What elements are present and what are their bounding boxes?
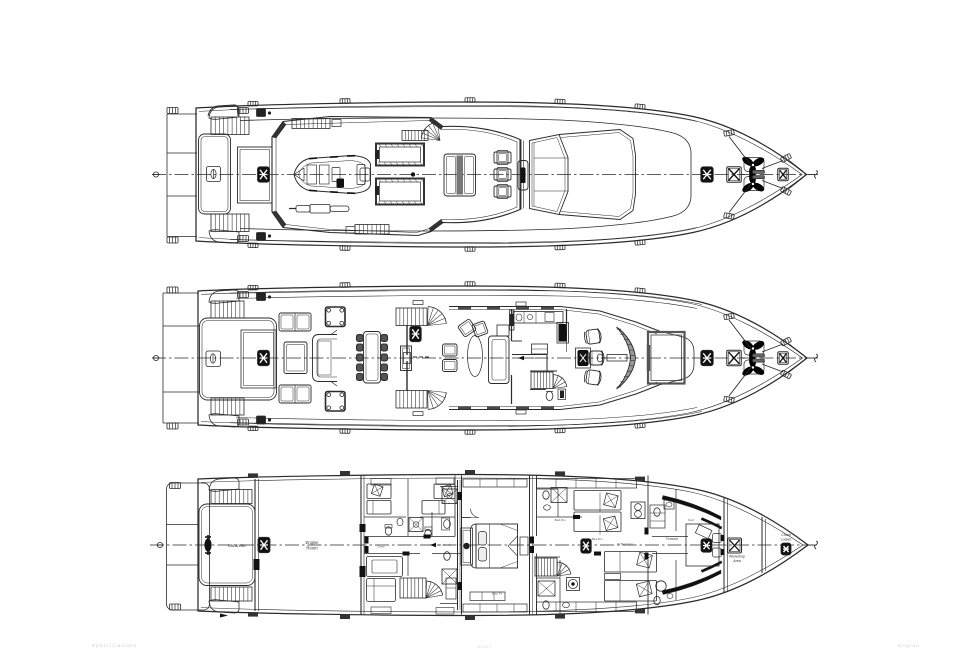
- svg-text:Engine: Engine: [305, 540, 319, 545]
- svg-text:Workshop: Workshop: [729, 555, 745, 559]
- svg-text:Lazarette: Lazarette: [228, 543, 246, 548]
- svg-text:W Bed Unit: W Bed Unit: [617, 542, 632, 546]
- svg-text:WC: WC: [554, 573, 560, 577]
- svg-text:Bed Rm: Bed Rm: [592, 537, 603, 541]
- svg-text:S p e c i f i c a t i o n s: S p e c i f i c a t i o n s: [92, 643, 137, 648]
- svg-text:Room: Room: [306, 546, 318, 551]
- svg-text:G A p l a n: G A p l a n: [898, 643, 919, 648]
- svg-text:Fwd: Fwd: [688, 518, 694, 522]
- svg-text:Chain: Chain: [781, 533, 790, 537]
- svg-text:Bed Rm: Bed Rm: [555, 518, 566, 522]
- svg-text:Crew: Crew: [377, 545, 385, 549]
- svg-text:Sofa TV: Sofa TV: [492, 592, 503, 596]
- svg-text:o v e r: o v e r: [478, 644, 491, 649]
- svg-text:Locker: Locker: [781, 538, 793, 542]
- svg-text:Forward: Forward: [666, 537, 678, 541]
- svg-text:Area: Area: [733, 559, 741, 563]
